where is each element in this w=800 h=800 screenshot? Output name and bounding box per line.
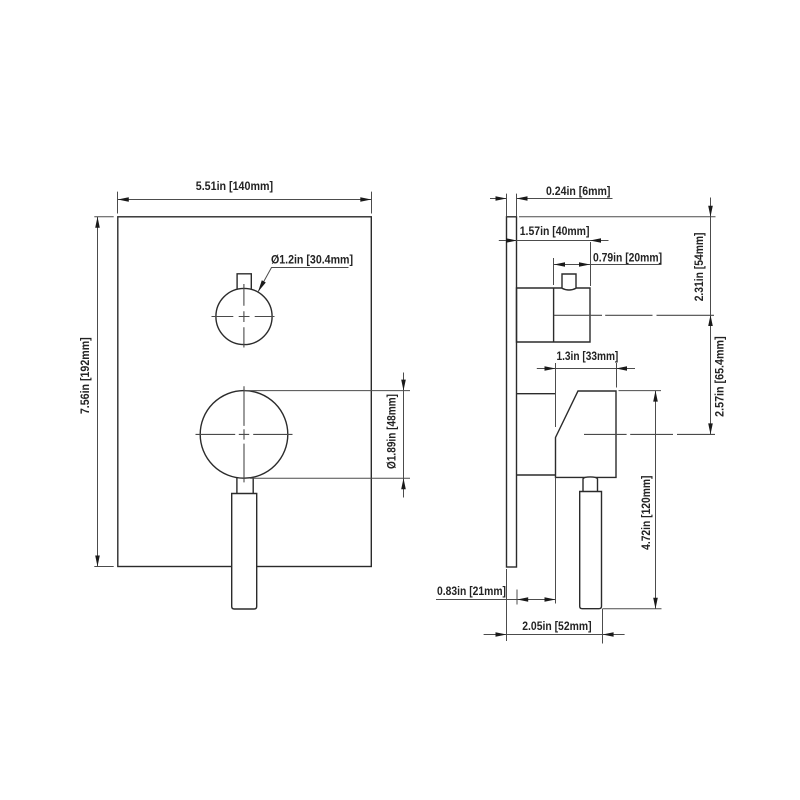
svg-text:0.79in [20mm]: 0.79in [20mm] [593, 253, 662, 265]
svg-text:5.51in [140mm]: 5.51in [140mm] [196, 181, 273, 193]
svg-text:1.3in [33mm]: 1.3in [33mm] [557, 351, 619, 363]
svg-text:2.05in [52mm]: 2.05in [52mm] [522, 621, 591, 633]
svg-text:7.56in [192mm]: 7.56in [192mm] [80, 337, 92, 414]
svg-text:4.72in [120mm]: 4.72in [120mm] [641, 475, 653, 549]
svg-text:2.31in [54mm]: 2.31in [54mm] [694, 232, 706, 301]
svg-text:0.24in [6mm]: 0.24in [6mm] [546, 186, 611, 198]
svg-text:Ø1.89in [48mm]: Ø1.89in [48mm] [387, 394, 399, 469]
svg-text:0.83in [21mm]: 0.83in [21mm] [437, 586, 506, 598]
svg-text:2.57in [65.4mm]: 2.57in [65.4mm] [715, 336, 727, 417]
svg-text:Ø1.2in [30.4mm]: Ø1.2in [30.4mm] [271, 255, 353, 267]
svg-text:1.57in [40mm]: 1.57in [40mm] [520, 226, 590, 238]
